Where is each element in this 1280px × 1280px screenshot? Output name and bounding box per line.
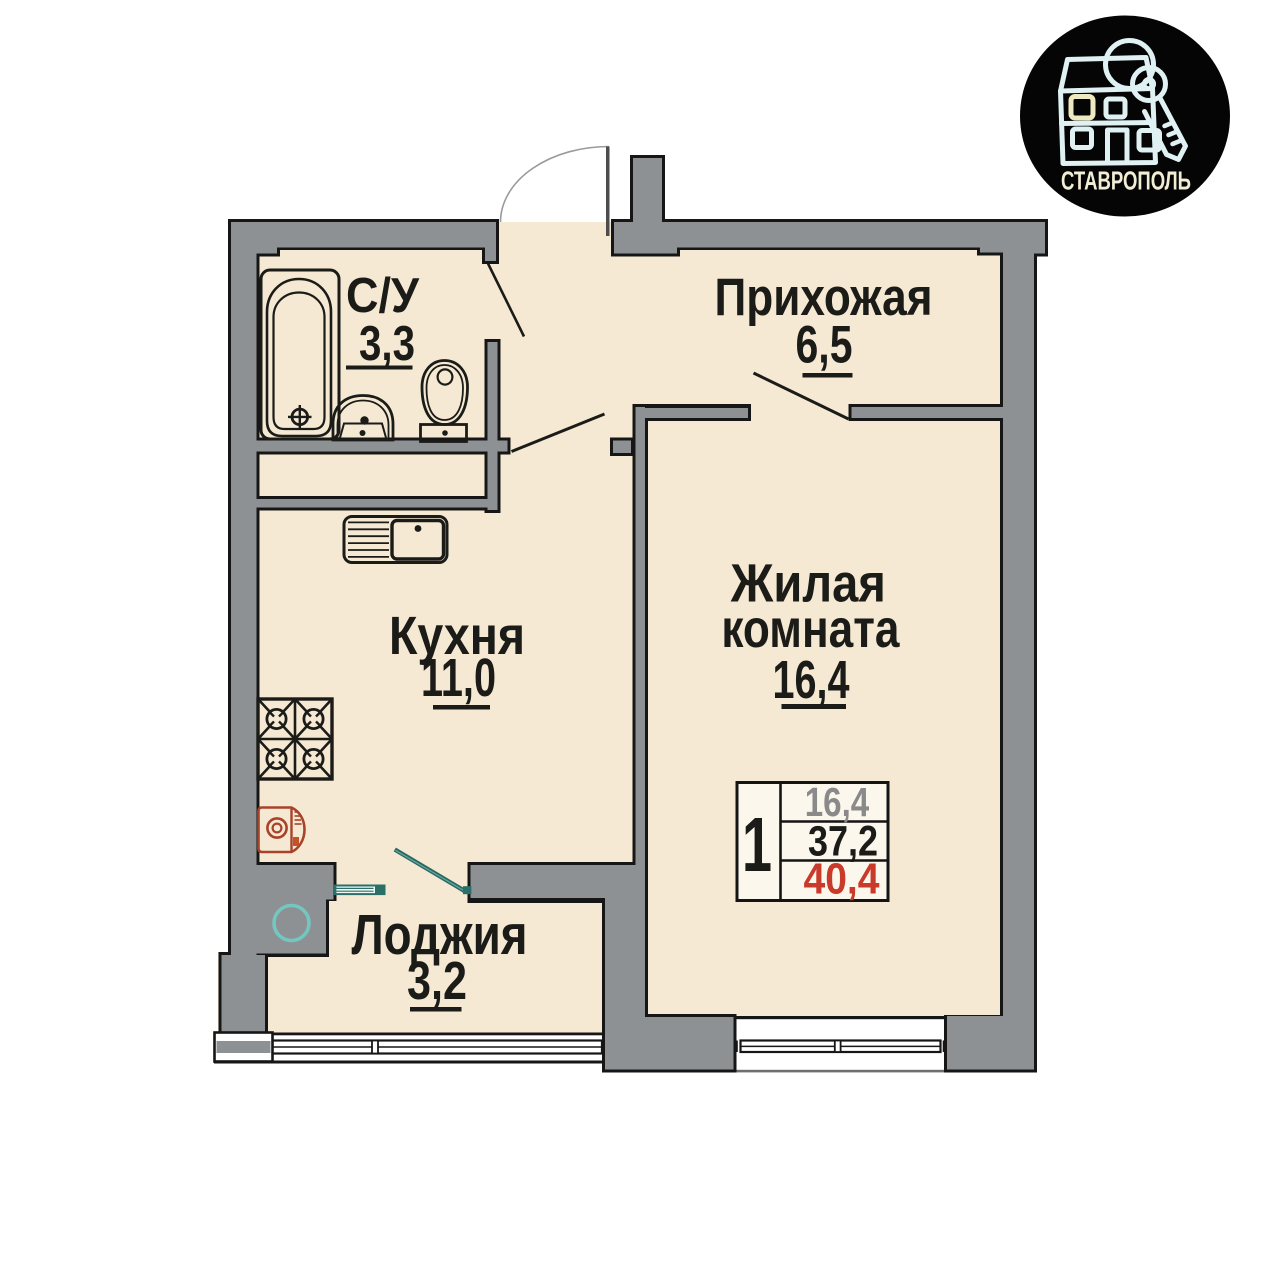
- svg-text:1: 1: [742, 802, 772, 888]
- svg-text:С/У: С/У: [346, 269, 419, 323]
- svg-text:16,4: 16,4: [773, 650, 850, 710]
- svg-text:11,0: 11,0: [421, 648, 496, 708]
- svg-text:СТАВРОПОЛЬ: СТАВРОПОЛЬ: [1061, 168, 1191, 196]
- svg-text:6,5: 6,5: [796, 316, 853, 375]
- svg-text:3,3: 3,3: [359, 317, 415, 371]
- svg-text:40,4: 40,4: [804, 855, 880, 904]
- svg-text:3,2: 3,2: [407, 951, 467, 1011]
